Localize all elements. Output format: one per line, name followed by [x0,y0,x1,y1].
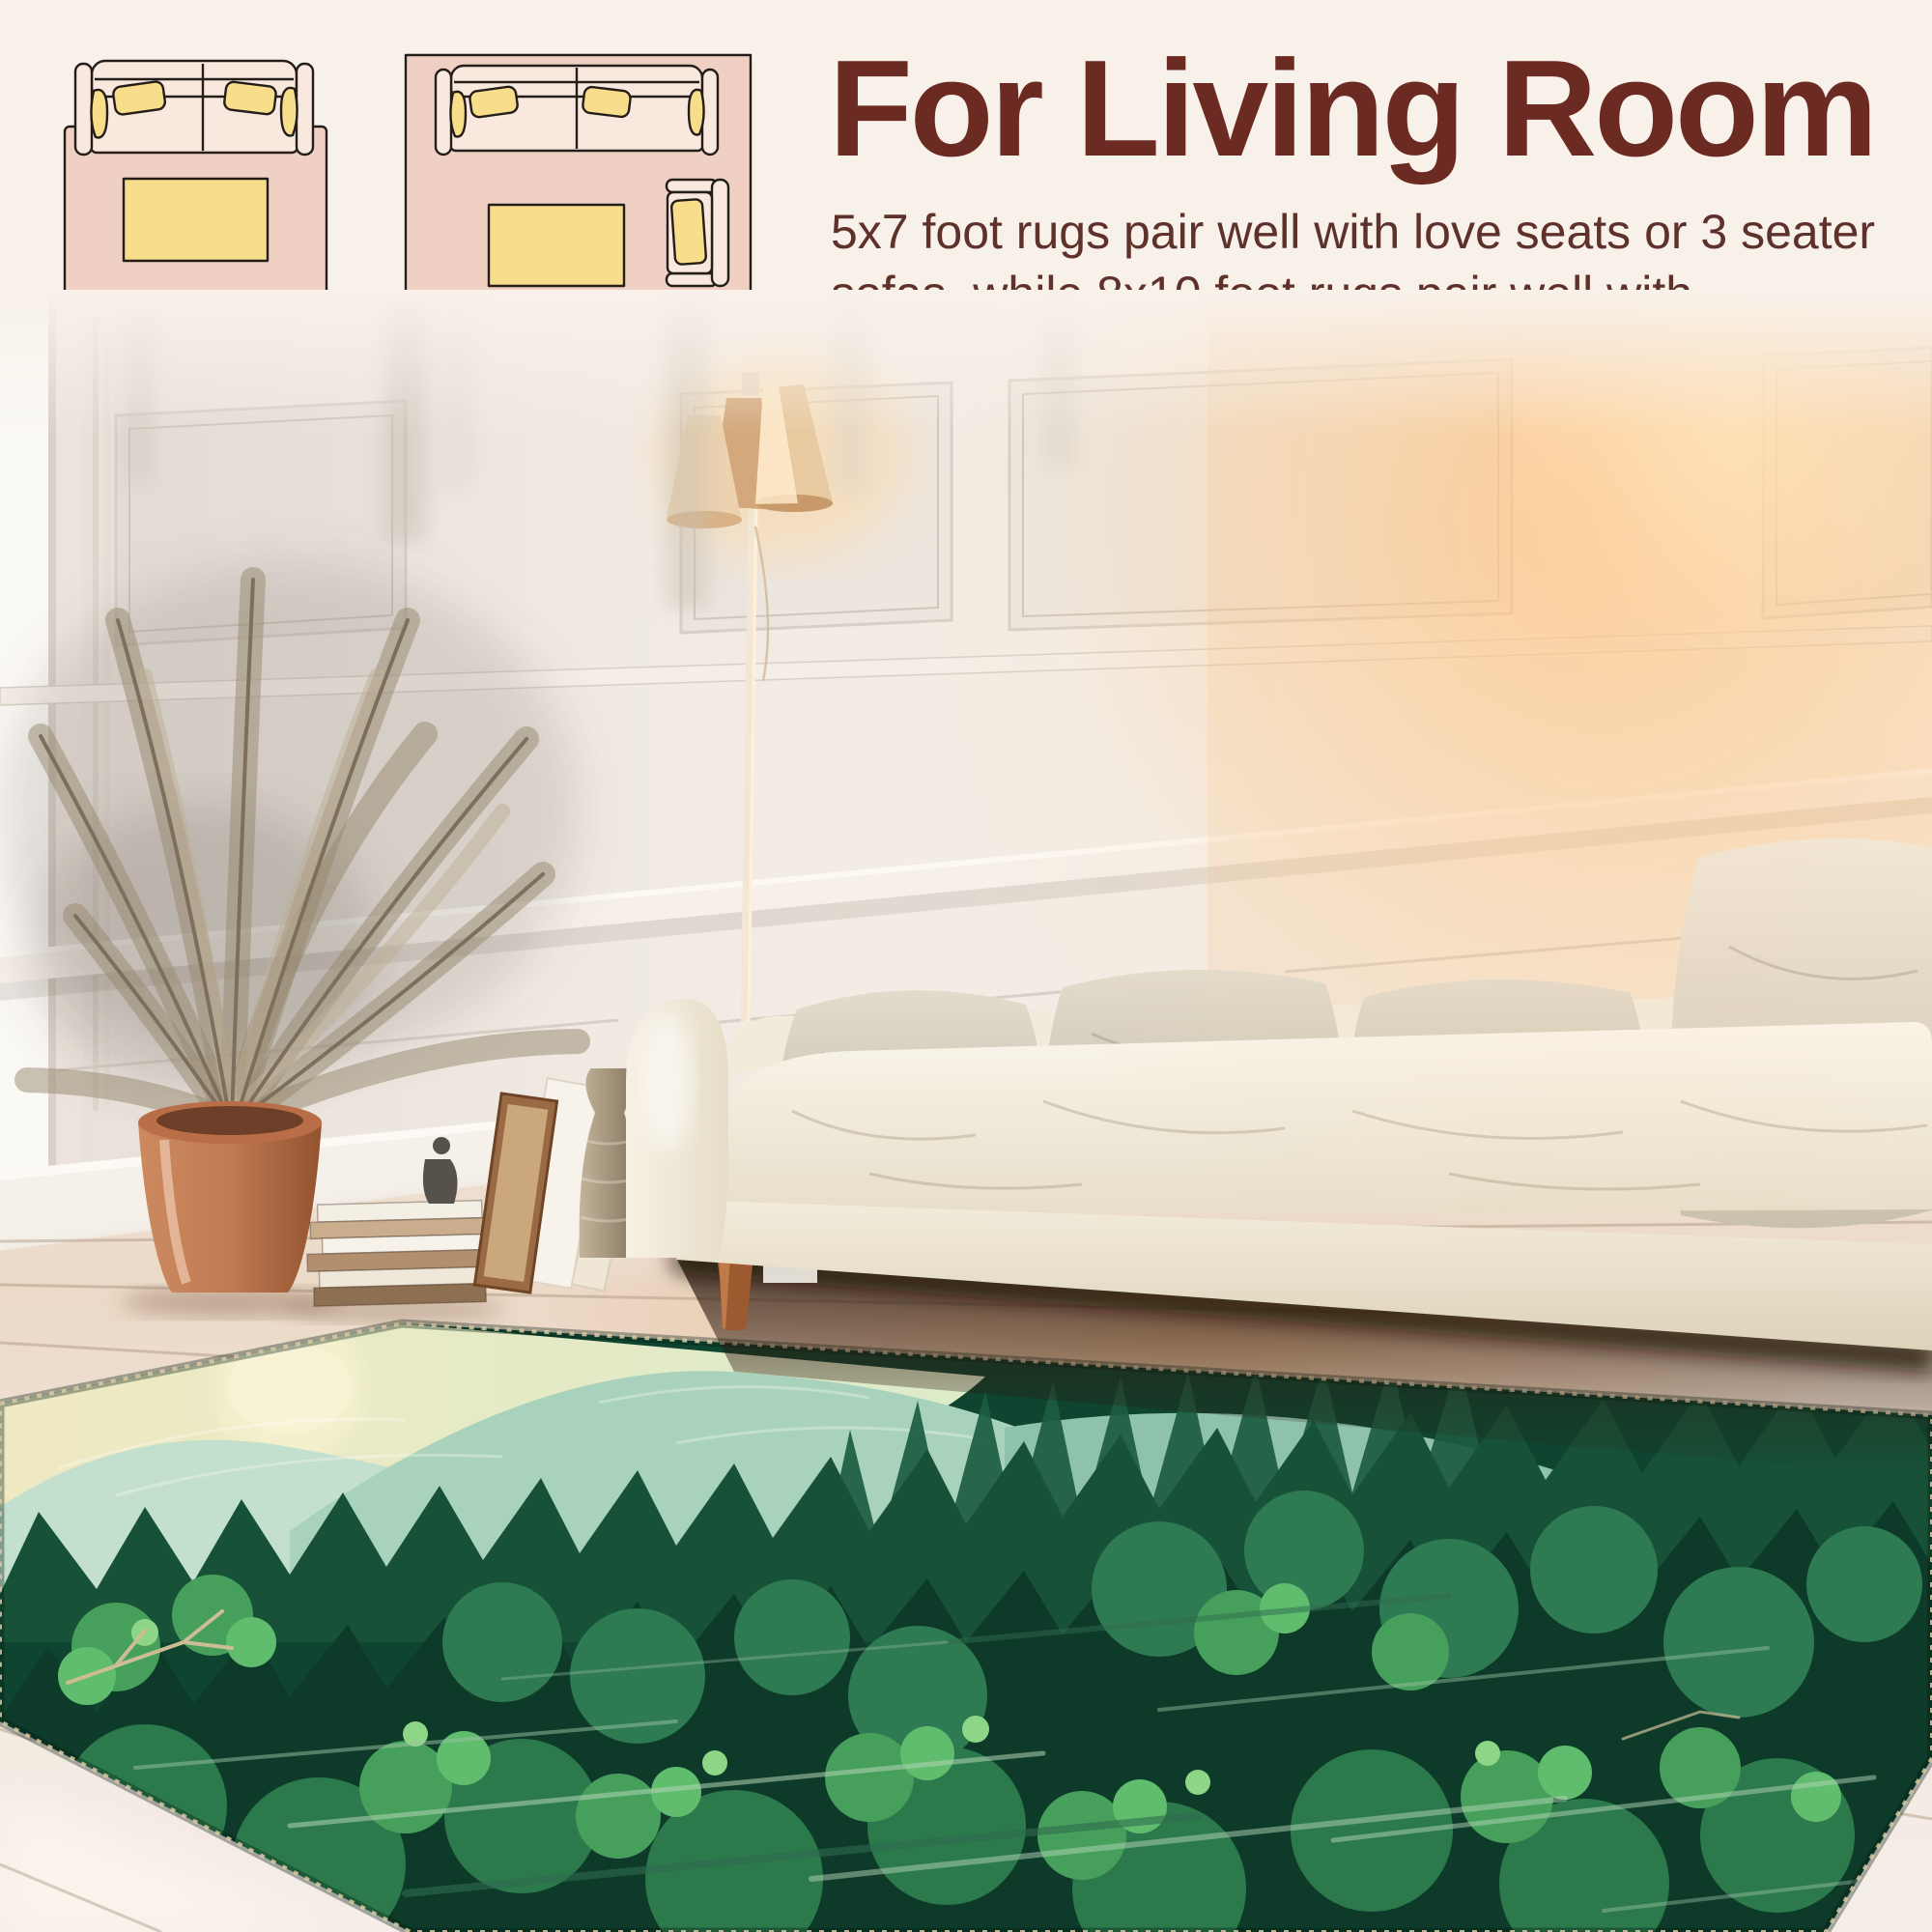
diagram-8x10-armchair [667,180,728,286]
body-line-1: 5x7 foot rugs pair well with love seats … [831,201,1913,263]
diagram-5x7-table [124,179,268,261]
living-room-photo [0,290,1932,1932]
page-root: 5x7 [0,0,1932,1932]
diagram-8x10-sofa [436,66,718,155]
diagram-8x10-table [489,205,624,286]
diagram-5x7-sofa [75,61,313,155]
page-title: For Living Room [829,37,1920,181]
